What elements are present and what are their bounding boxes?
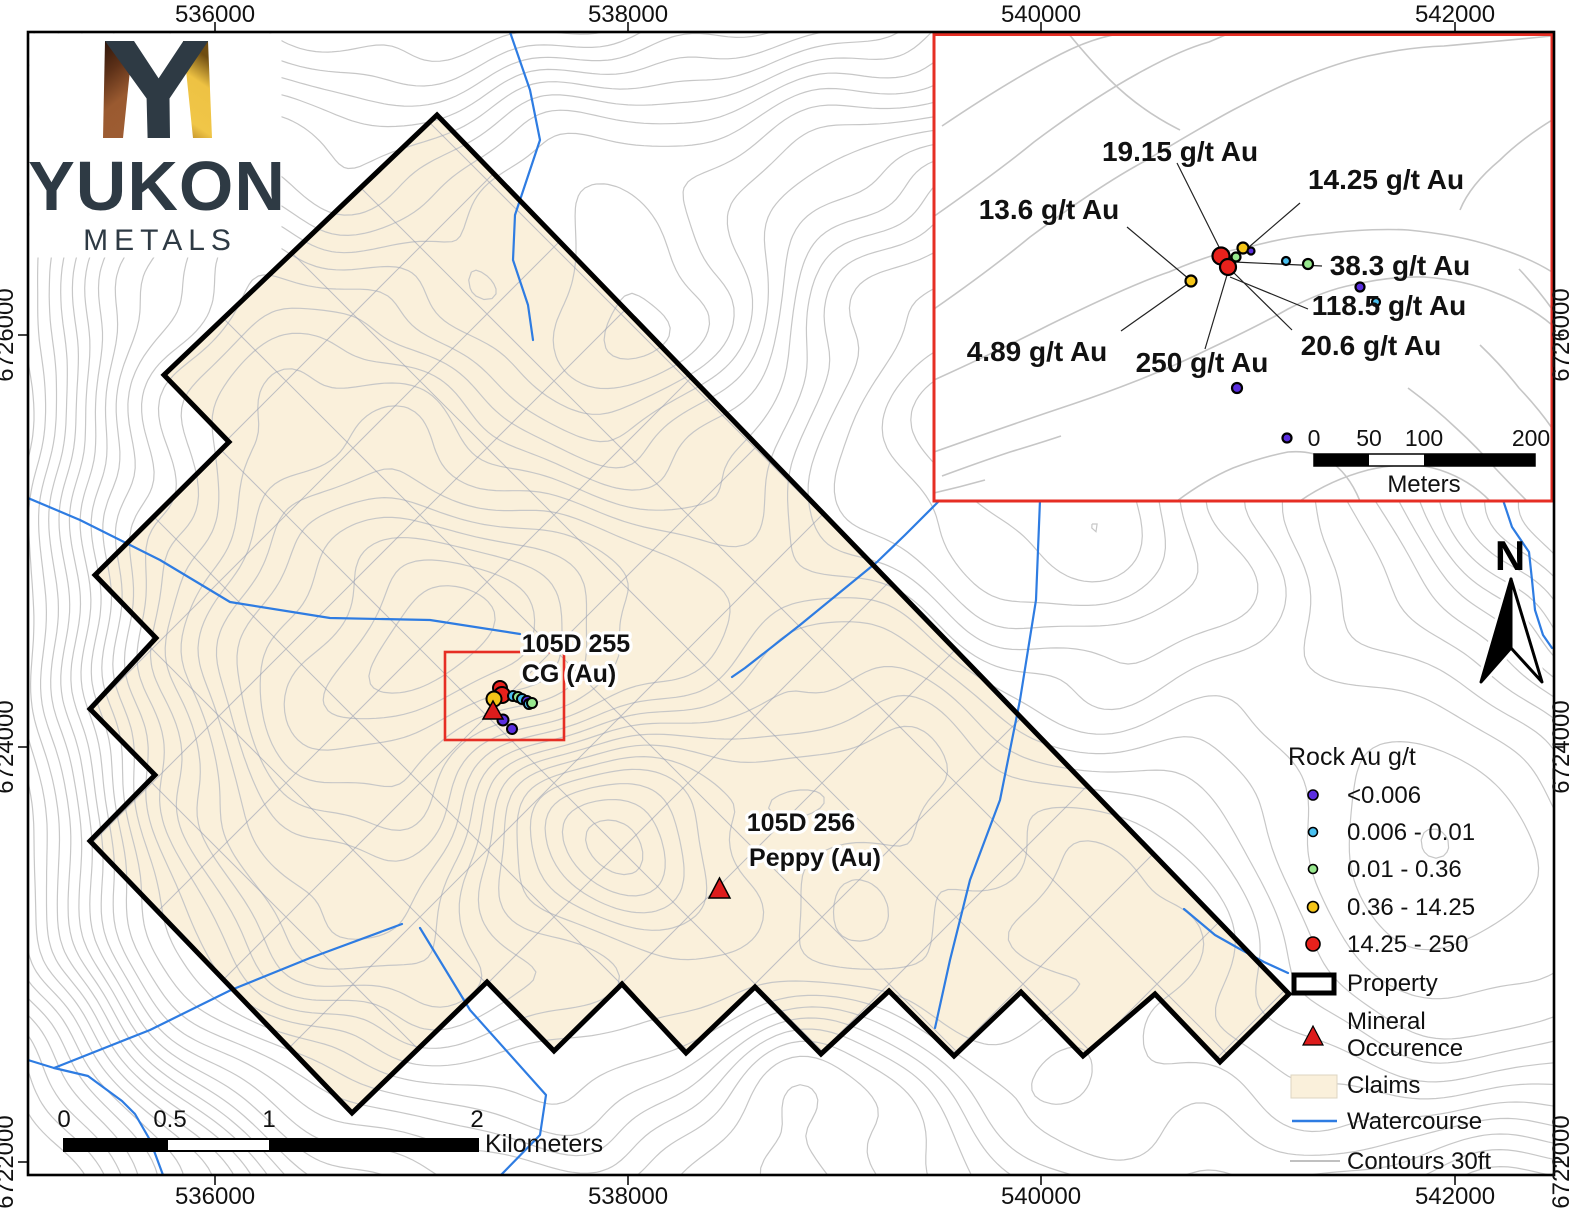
svg-text:6726000: 6726000 — [1548, 288, 1575, 381]
svg-text:0.5: 0.5 — [153, 1106, 186, 1133]
svg-text:4.89 g/t Au: 4.89 g/t Au — [967, 336, 1108, 367]
svg-text:Meters: Meters — [1387, 471, 1460, 498]
svg-text:13.6 g/t Au: 13.6 g/t Au — [979, 194, 1120, 225]
svg-text:538000: 538000 — [588, 1, 668, 28]
svg-text:0.36 - 14.25: 0.36 - 14.25 — [1347, 894, 1475, 921]
svg-text:118.5 g/t Au: 118.5 g/t Au — [1312, 290, 1467, 321]
svg-text:Claims: Claims — [1347, 1072, 1420, 1099]
svg-text:6726000: 6726000 — [0, 288, 19, 381]
svg-text:536000: 536000 — [175, 1183, 255, 1208]
svg-text:YUKON: YUKON — [28, 147, 286, 225]
svg-text:14.25 g/t Au: 14.25 g/t Au — [1308, 164, 1464, 195]
svg-text:Property: Property — [1347, 970, 1438, 997]
svg-text:Peppy (Au): Peppy (Au) — [749, 844, 881, 872]
svg-text:540000: 540000 — [1001, 1183, 1081, 1208]
svg-text:0: 0 — [57, 1106, 70, 1133]
svg-text:Mineral: Mineral — [1347, 1008, 1426, 1035]
svg-text:6724000: 6724000 — [1548, 700, 1575, 793]
svg-text:Watercourse: Watercourse — [1347, 1108, 1482, 1135]
svg-text:6722000: 6722000 — [1548, 1115, 1575, 1208]
svg-text:Rock Au g/t: Rock Au g/t — [1288, 743, 1416, 771]
svg-text:250 g/t Au: 250 g/t Au — [1136, 347, 1269, 378]
svg-text:<0.006: <0.006 — [1347, 782, 1421, 809]
svg-text:105D 256: 105D 256 — [747, 809, 855, 837]
svg-text:2: 2 — [470, 1106, 483, 1133]
svg-text:20.6 g/t Au: 20.6 g/t Au — [1301, 330, 1442, 361]
svg-text:Occurence: Occurence — [1347, 1035, 1463, 1062]
svg-text:0: 0 — [1308, 425, 1321, 451]
svg-text:Contours 30ft: Contours 30ft — [1347, 1148, 1491, 1175]
svg-text:540000: 540000 — [1001, 1, 1081, 28]
svg-text:6722000: 6722000 — [0, 1115, 19, 1208]
svg-text:19.15 g/t Au: 19.15 g/t Au — [1102, 136, 1258, 167]
svg-text:0.006 - 0.01: 0.006 - 0.01 — [1347, 819, 1475, 846]
svg-text:CG (Au): CG (Au) — [522, 660, 616, 688]
svg-text:38.3 g/t Au: 38.3 g/t Au — [1330, 250, 1471, 281]
svg-text:0.01 - 0.36: 0.01 - 0.36 — [1347, 856, 1462, 883]
svg-text:536000: 536000 — [175, 1, 255, 28]
svg-text:Kilometers: Kilometers — [485, 1130, 603, 1158]
svg-text:50: 50 — [1356, 425, 1382, 451]
svg-text:542000: 542000 — [1415, 1183, 1495, 1208]
svg-text:200: 200 — [1512, 425, 1550, 451]
svg-text:6724000: 6724000 — [0, 700, 19, 793]
svg-text:542000: 542000 — [1415, 1, 1495, 28]
svg-text:N: N — [1495, 532, 1525, 579]
svg-text:METALS: METALS — [83, 224, 237, 257]
svg-text:100: 100 — [1405, 425, 1443, 451]
svg-text:1: 1 — [262, 1106, 275, 1133]
svg-text:105D 255: 105D 255 — [522, 630, 631, 658]
svg-text:538000: 538000 — [588, 1183, 668, 1208]
svg-text:14.25 - 250: 14.25 - 250 — [1347, 931, 1468, 958]
